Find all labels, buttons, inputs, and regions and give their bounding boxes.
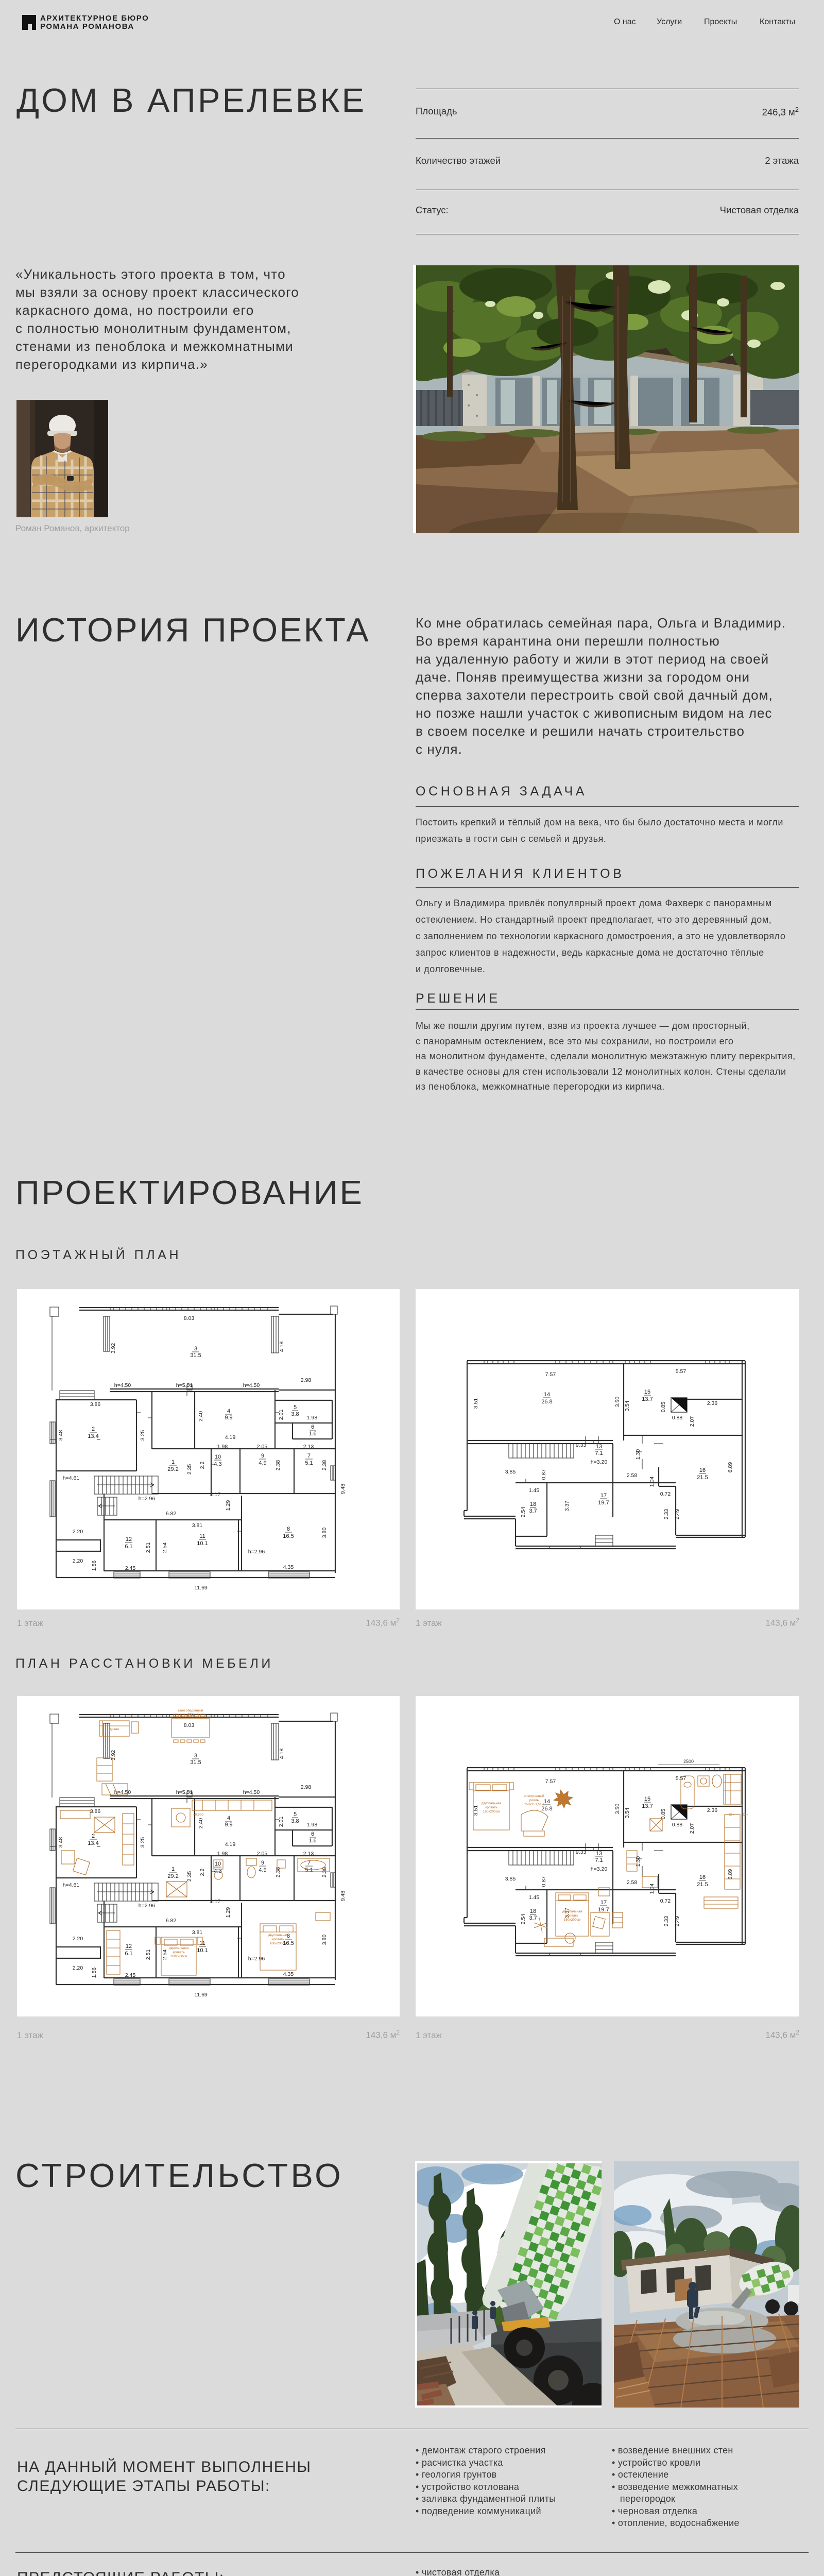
svg-text:950: 950 bbox=[188, 1713, 194, 1717]
svg-text:h=3.20: h=3.20 bbox=[591, 1459, 608, 1465]
svg-text:кровать: кровать bbox=[272, 1938, 284, 1941]
svg-text:14: 14 bbox=[544, 1392, 550, 1398]
svg-text:3.50: 3.50 bbox=[614, 1397, 621, 1408]
svg-text:2.51: 2.51 bbox=[145, 1543, 151, 1553]
svg-text:3.85: 3.85 bbox=[505, 1469, 516, 1475]
svg-text:160х200см: 160х200см bbox=[270, 1942, 287, 1945]
svg-text:2.07: 2.07 bbox=[689, 1416, 695, 1427]
svg-text:11: 11 bbox=[199, 1533, 205, 1539]
svg-text:3: 3 bbox=[194, 1346, 197, 1352]
svg-text:0.87: 0.87 bbox=[541, 1469, 547, 1480]
svg-text:1.6: 1.6 bbox=[308, 1431, 316, 1437]
svg-text:160х200см: 160х200см bbox=[564, 1918, 581, 1922]
svg-text:стол обеденный: стол обеденный bbox=[178, 1708, 203, 1713]
svg-text:11.69: 11.69 bbox=[194, 1585, 208, 1591]
svg-text:кровать: кровать bbox=[566, 1914, 578, 1918]
svg-text:3.51: 3.51 bbox=[473, 1398, 479, 1409]
svg-text:16.5: 16.5 bbox=[283, 1533, 294, 1539]
svg-text:1.29: 1.29 bbox=[225, 1500, 231, 1511]
svg-text:кровать: кровать bbox=[173, 1951, 185, 1954]
svg-text:0.85: 0.85 bbox=[660, 1402, 666, 1413]
svg-text:1.45: 1.45 bbox=[529, 1487, 540, 1494]
svg-text:9: 9 bbox=[261, 1453, 264, 1459]
svg-text:СН: СН bbox=[743, 1813, 748, 1817]
svg-text:2.33: 2.33 bbox=[663, 1509, 669, 1520]
svg-text:6.1: 6.1 bbox=[125, 1544, 132, 1550]
svg-text:2.45: 2.45 bbox=[125, 1565, 136, 1571]
svg-text:3.8: 3.8 bbox=[291, 1411, 299, 1417]
svg-text:2.20: 2.20 bbox=[73, 1558, 83, 1564]
svg-text:2.17: 2.17 bbox=[210, 1492, 221, 1498]
svg-text:1: 1 bbox=[171, 1459, 175, 1465]
svg-text:2.38: 2.38 bbox=[321, 1460, 328, 1471]
svg-text:5.57: 5.57 bbox=[676, 1368, 686, 1375]
svg-text:18: 18 bbox=[530, 1501, 536, 1507]
svg-text:10: 10 bbox=[215, 1454, 221, 1460]
svg-text:1.56: 1.56 bbox=[91, 1561, 97, 1571]
svg-text:4: 4 bbox=[227, 1408, 230, 1414]
svg-text:12: 12 bbox=[126, 1536, 132, 1543]
svg-text:1.30: 1.30 bbox=[635, 1449, 641, 1460]
svg-text:13.7: 13.7 bbox=[642, 1396, 653, 1402]
svg-text:21.5: 21.5 bbox=[697, 1475, 708, 1481]
svg-text:0.72: 0.72 bbox=[660, 1491, 671, 1497]
svg-text:6: 6 bbox=[311, 1424, 314, 1430]
svg-text:16: 16 bbox=[699, 1467, 706, 1473]
svg-text:9.33: 9.33 bbox=[576, 1442, 587, 1448]
svg-text:160х200см: 160х200см bbox=[170, 1955, 187, 1958]
svg-text:6.82: 6.82 bbox=[166, 1511, 177, 1517]
svg-text:2.20: 2.20 bbox=[73, 1529, 83, 1535]
svg-text:0.88: 0.88 bbox=[672, 1415, 683, 1421]
svg-text:8: 8 bbox=[287, 1526, 290, 1532]
svg-text:2.58: 2.58 bbox=[627, 1472, 638, 1479]
svg-text:5: 5 bbox=[294, 1404, 297, 1411]
svg-text:26.8: 26.8 bbox=[541, 1399, 552, 1405]
svg-text:h=2.96: h=2.96 bbox=[248, 1549, 265, 1555]
svg-text:3.92: 3.92 bbox=[110, 1343, 116, 1354]
svg-text:3.80: 3.80 bbox=[321, 1528, 328, 1538]
svg-text:2.54: 2.54 bbox=[520, 1507, 526, 1518]
svg-text:13: 13 bbox=[596, 1444, 602, 1450]
svg-text:7: 7 bbox=[307, 1453, 311, 1459]
svg-text:9.9: 9.9 bbox=[225, 1415, 232, 1421]
svg-text:3.25: 3.25 bbox=[140, 1430, 146, 1441]
svg-text:4.3: 4.3 bbox=[214, 1461, 221, 1467]
svg-text:3.37: 3.37 bbox=[564, 1501, 570, 1512]
svg-text:2.01: 2.01 bbox=[278, 1410, 284, 1420]
svg-text:кровать: кровать bbox=[485, 1806, 497, 1809]
svg-text:3.86: 3.86 bbox=[90, 1401, 101, 1408]
svg-text:4.19: 4.19 bbox=[225, 1434, 236, 1440]
svg-text:1.04: 1.04 bbox=[649, 1477, 655, 1487]
svg-text:2.98: 2.98 bbox=[301, 1377, 312, 1383]
svg-text:3.7: 3.7 bbox=[529, 1508, 537, 1514]
svg-text:двуспальная: двуспальная bbox=[482, 1802, 502, 1805]
svg-text:двуспальная: двуспальная bbox=[562, 1910, 582, 1913]
svg-text:9.48: 9.48 bbox=[340, 1484, 346, 1495]
svg-text:4.35: 4.35 bbox=[283, 1564, 294, 1570]
svg-text:h=4.61: h=4.61 bbox=[63, 1475, 80, 1481]
svg-text:10.1: 10.1 bbox=[197, 1540, 208, 1547]
svg-text:двуспальная: двуспальная bbox=[169, 1946, 189, 1950]
svg-text:h=4.50: h=4.50 bbox=[114, 1382, 131, 1388]
svg-text:4.9: 4.9 bbox=[259, 1460, 266, 1466]
svg-text:2.49: 2.49 bbox=[674, 1509, 680, 1520]
svg-text:7.57: 7.57 bbox=[545, 1371, 556, 1378]
svg-text:2.38: 2.38 bbox=[275, 1460, 281, 1471]
svg-text:2.35: 2.35 bbox=[186, 1464, 193, 1475]
svg-text:диван: диван bbox=[110, 1727, 119, 1731]
svg-text:2.2: 2.2 bbox=[199, 1462, 205, 1469]
svg-text:160х200см: 160х200см bbox=[483, 1810, 500, 1814]
svg-text:8.03: 8.03 bbox=[184, 1315, 195, 1321]
svg-text:1.98: 1.98 bbox=[217, 1444, 228, 1450]
svg-text:29.2: 29.2 bbox=[167, 1466, 178, 1472]
svg-text:h=4.50: h=4.50 bbox=[243, 1382, 260, 1388]
svg-text:19.7: 19.7 bbox=[598, 1500, 609, 1506]
svg-text:2.36: 2.36 bbox=[707, 1400, 718, 1406]
svg-text:4.18: 4.18 bbox=[279, 1342, 285, 1352]
svg-text:17: 17 bbox=[600, 1493, 607, 1499]
svg-text:2.40: 2.40 bbox=[198, 1411, 204, 1422]
svg-text:1.98: 1.98 bbox=[307, 1415, 318, 1421]
svg-text:150х151,5см: 150х151,5см bbox=[524, 1803, 544, 1806]
svg-text:7.1: 7.1 bbox=[595, 1450, 603, 1456]
svg-text:5.1: 5.1 bbox=[305, 1460, 313, 1466]
svg-text:рояль: рояль bbox=[529, 1799, 539, 1802]
svg-text:15: 15 bbox=[644, 1389, 650, 1395]
svg-text:3.81: 3.81 bbox=[192, 1522, 203, 1529]
svg-text:2500: 2500 bbox=[683, 1759, 694, 1764]
svg-text:13.4: 13.4 bbox=[88, 1433, 98, 1439]
svg-text:электронный: электронный bbox=[524, 1794, 544, 1798]
svg-text:СН: СН bbox=[729, 1813, 734, 1817]
svg-text:двуспальная: двуспальная bbox=[268, 1934, 288, 1937]
svg-text:2.05: 2.05 bbox=[257, 1444, 268, 1450]
svg-text:h=2.96: h=2.96 bbox=[139, 1496, 156, 1502]
svg-text:+0.900: +0.900 bbox=[193, 1813, 203, 1817]
svg-text:h=5.51: h=5.51 bbox=[176, 1382, 193, 1388]
svg-text:6.89: 6.89 bbox=[727, 1462, 733, 1473]
svg-text:2.54: 2.54 bbox=[162, 1543, 168, 1553]
svg-text:2.13: 2.13 bbox=[303, 1444, 314, 1450]
svg-text:3.54: 3.54 bbox=[624, 1401, 630, 1412]
svg-text:2: 2 bbox=[92, 1426, 95, 1432]
svg-text:3.48: 3.48 bbox=[58, 1430, 64, 1441]
svg-text:31.5: 31.5 bbox=[190, 1352, 201, 1359]
